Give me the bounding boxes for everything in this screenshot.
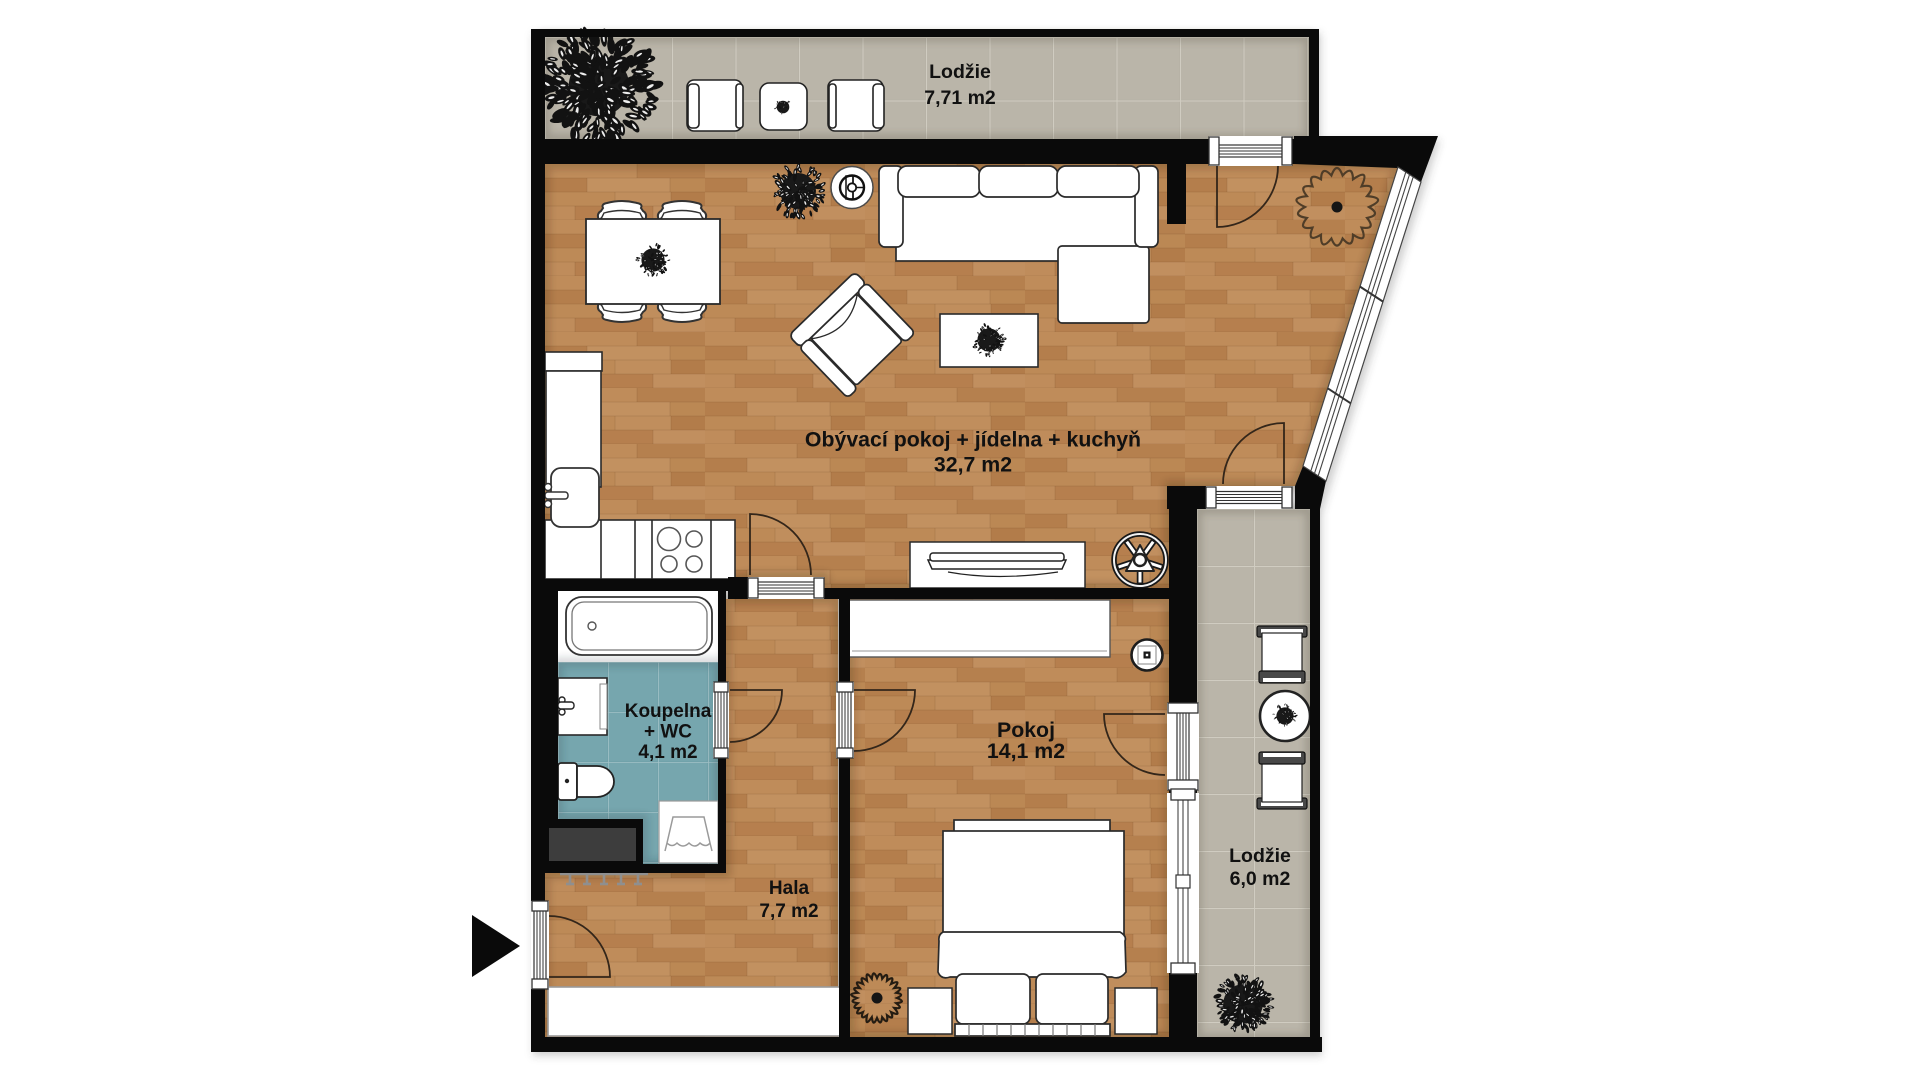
svg-text:7,7 m2: 7,7 m2 (759, 901, 818, 922)
svg-text:32,7 m2: 32,7 m2 (934, 453, 1012, 477)
svg-text:Hala: Hala (769, 878, 810, 899)
svg-text:6,0 m2: 6,0 m2 (1230, 868, 1291, 890)
svg-text:Lodžie: Lodžie (1229, 845, 1291, 867)
svg-text:Obývací pokoj + jídelna + kuch: Obývací pokoj + jídelna + kuchyň (805, 428, 1141, 452)
svg-text:+ WC: + WC (644, 722, 692, 743)
svg-text:4,1 m2: 4,1 m2 (638, 742, 697, 763)
svg-text:7,71 m2: 7,71 m2 (924, 87, 996, 109)
svg-text:Koupelna: Koupelna (625, 701, 712, 722)
svg-text:Lodžie: Lodžie (929, 61, 991, 83)
svg-text:14,1 m2: 14,1 m2 (987, 739, 1065, 763)
